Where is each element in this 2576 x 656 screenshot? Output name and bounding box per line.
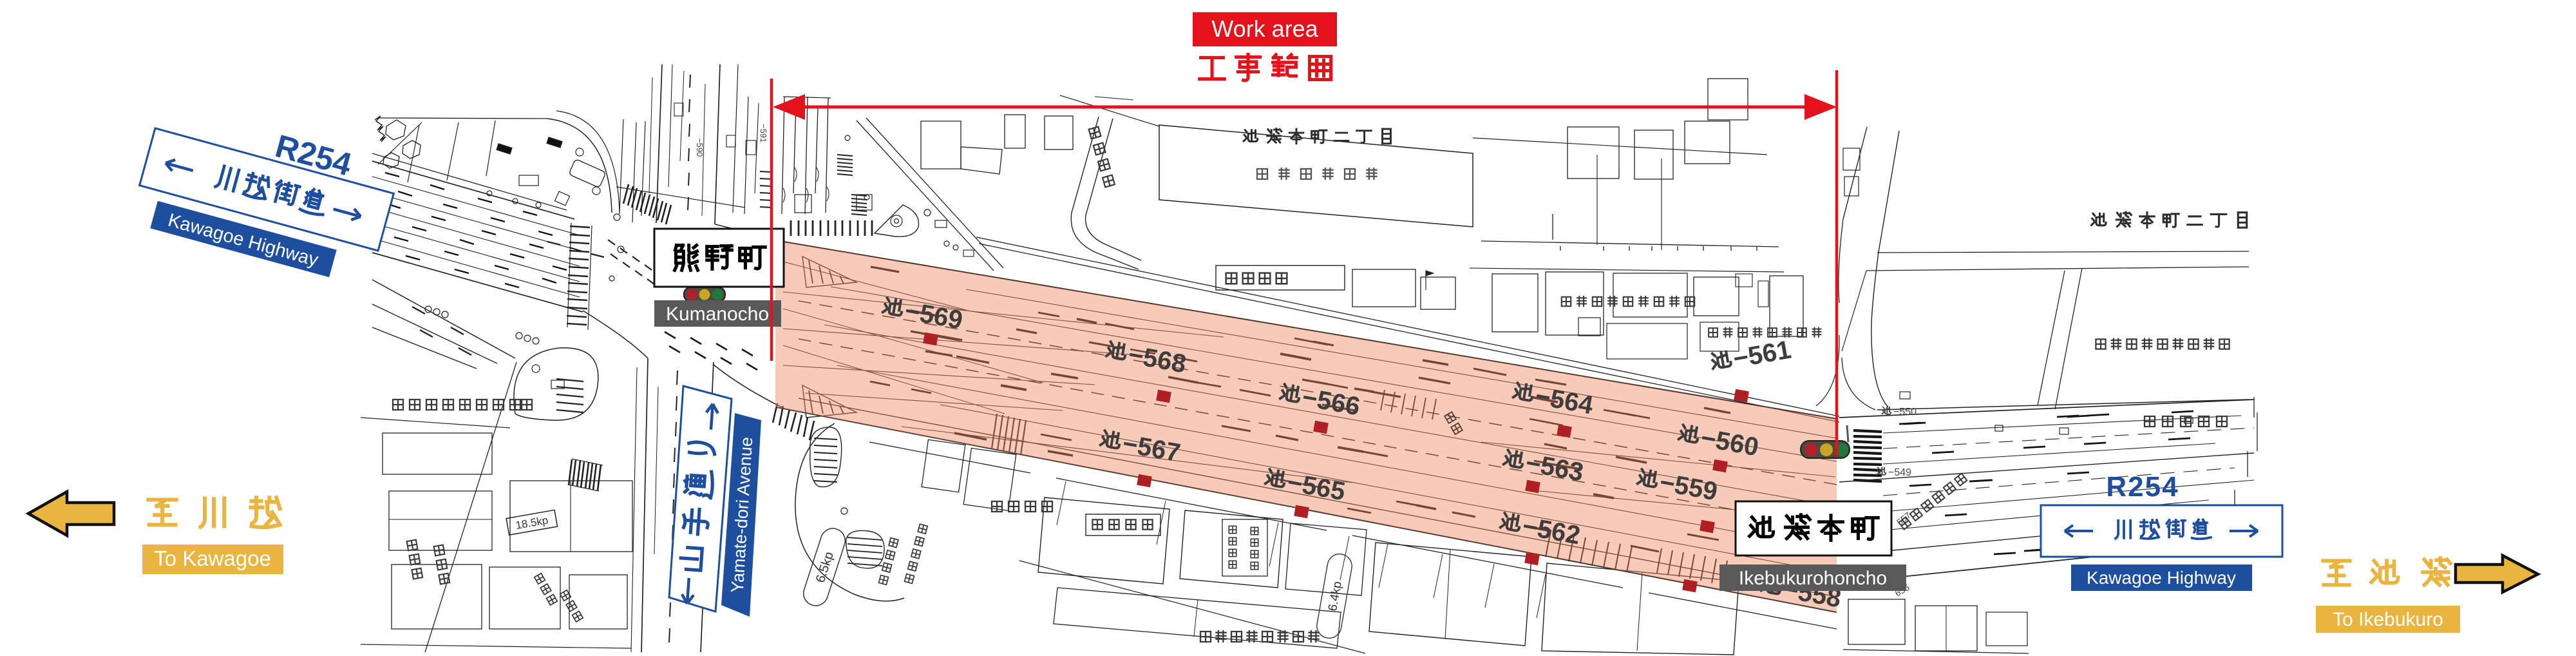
svg-text:R254: R254 [2106,471,2179,503]
svg-text:Work area: Work area [1211,15,1318,42]
svg-text:−590: −590 [695,138,705,157]
svg-text:−550: −550 [1893,407,1917,418]
svg-text:To Ikebukuro: To Ikebukuro [2333,609,2443,630]
svg-text:−591: −591 [759,124,768,142]
svg-text:−549: −549 [1888,467,1911,478]
svg-text:To Kawagoe: To Kawagoe [154,546,271,570]
svg-text:Ikebukurohoncho: Ikebukurohoncho [1739,568,1887,589]
svg-text:Kawagoe Highway: Kawagoe Highway [2087,568,2236,588]
svg-text:Kumanocho: Kumanocho [666,304,769,325]
